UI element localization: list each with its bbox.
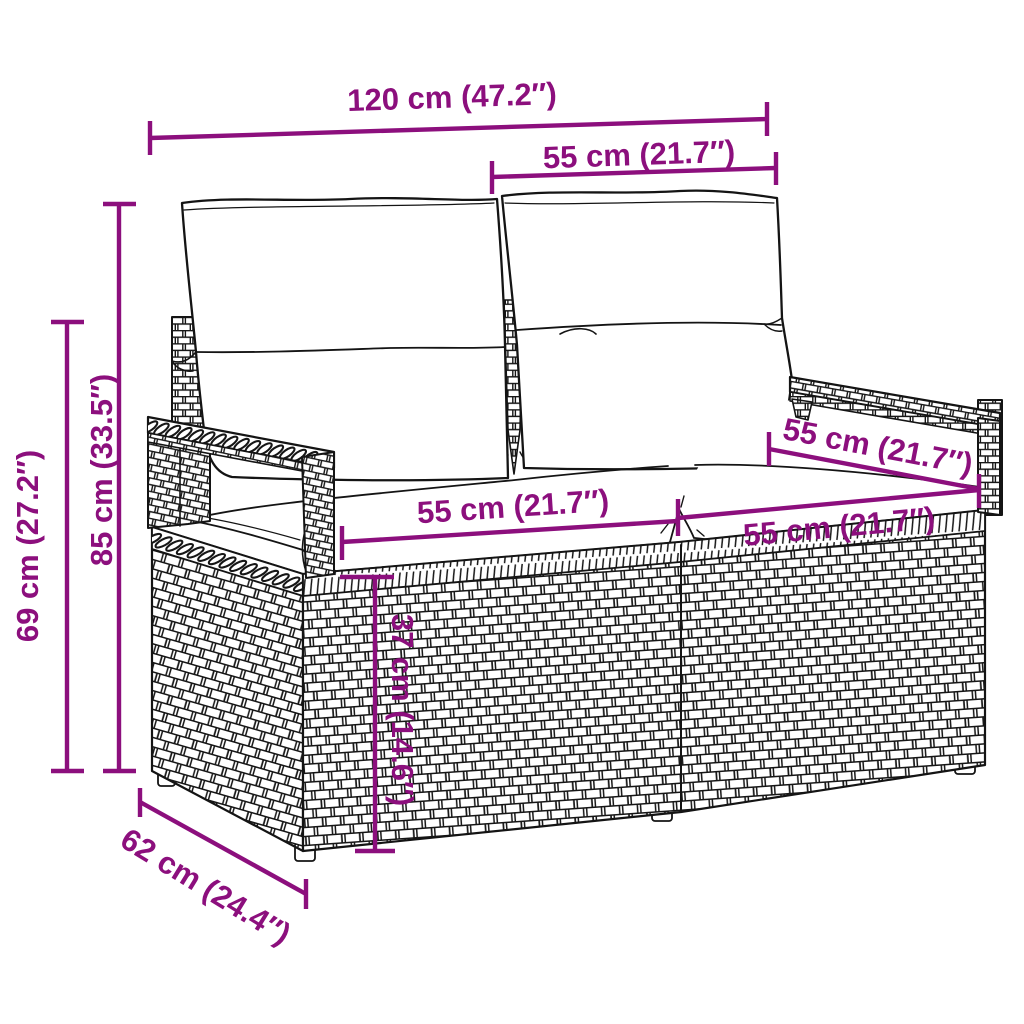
svg-text:85 cm (33.5″): 85 cm (33.5″) [84,374,119,566]
svg-text:37 cm (14.6″): 37 cm (14.6″) [385,614,420,806]
svg-text:120 cm (47.2″): 120 cm (47.2″) [347,76,558,118]
svg-text:69 cm (27.2″): 69 cm (27.2″) [10,450,45,642]
svg-text:55 cm (21.7″): 55 cm (21.7″) [542,134,735,176]
